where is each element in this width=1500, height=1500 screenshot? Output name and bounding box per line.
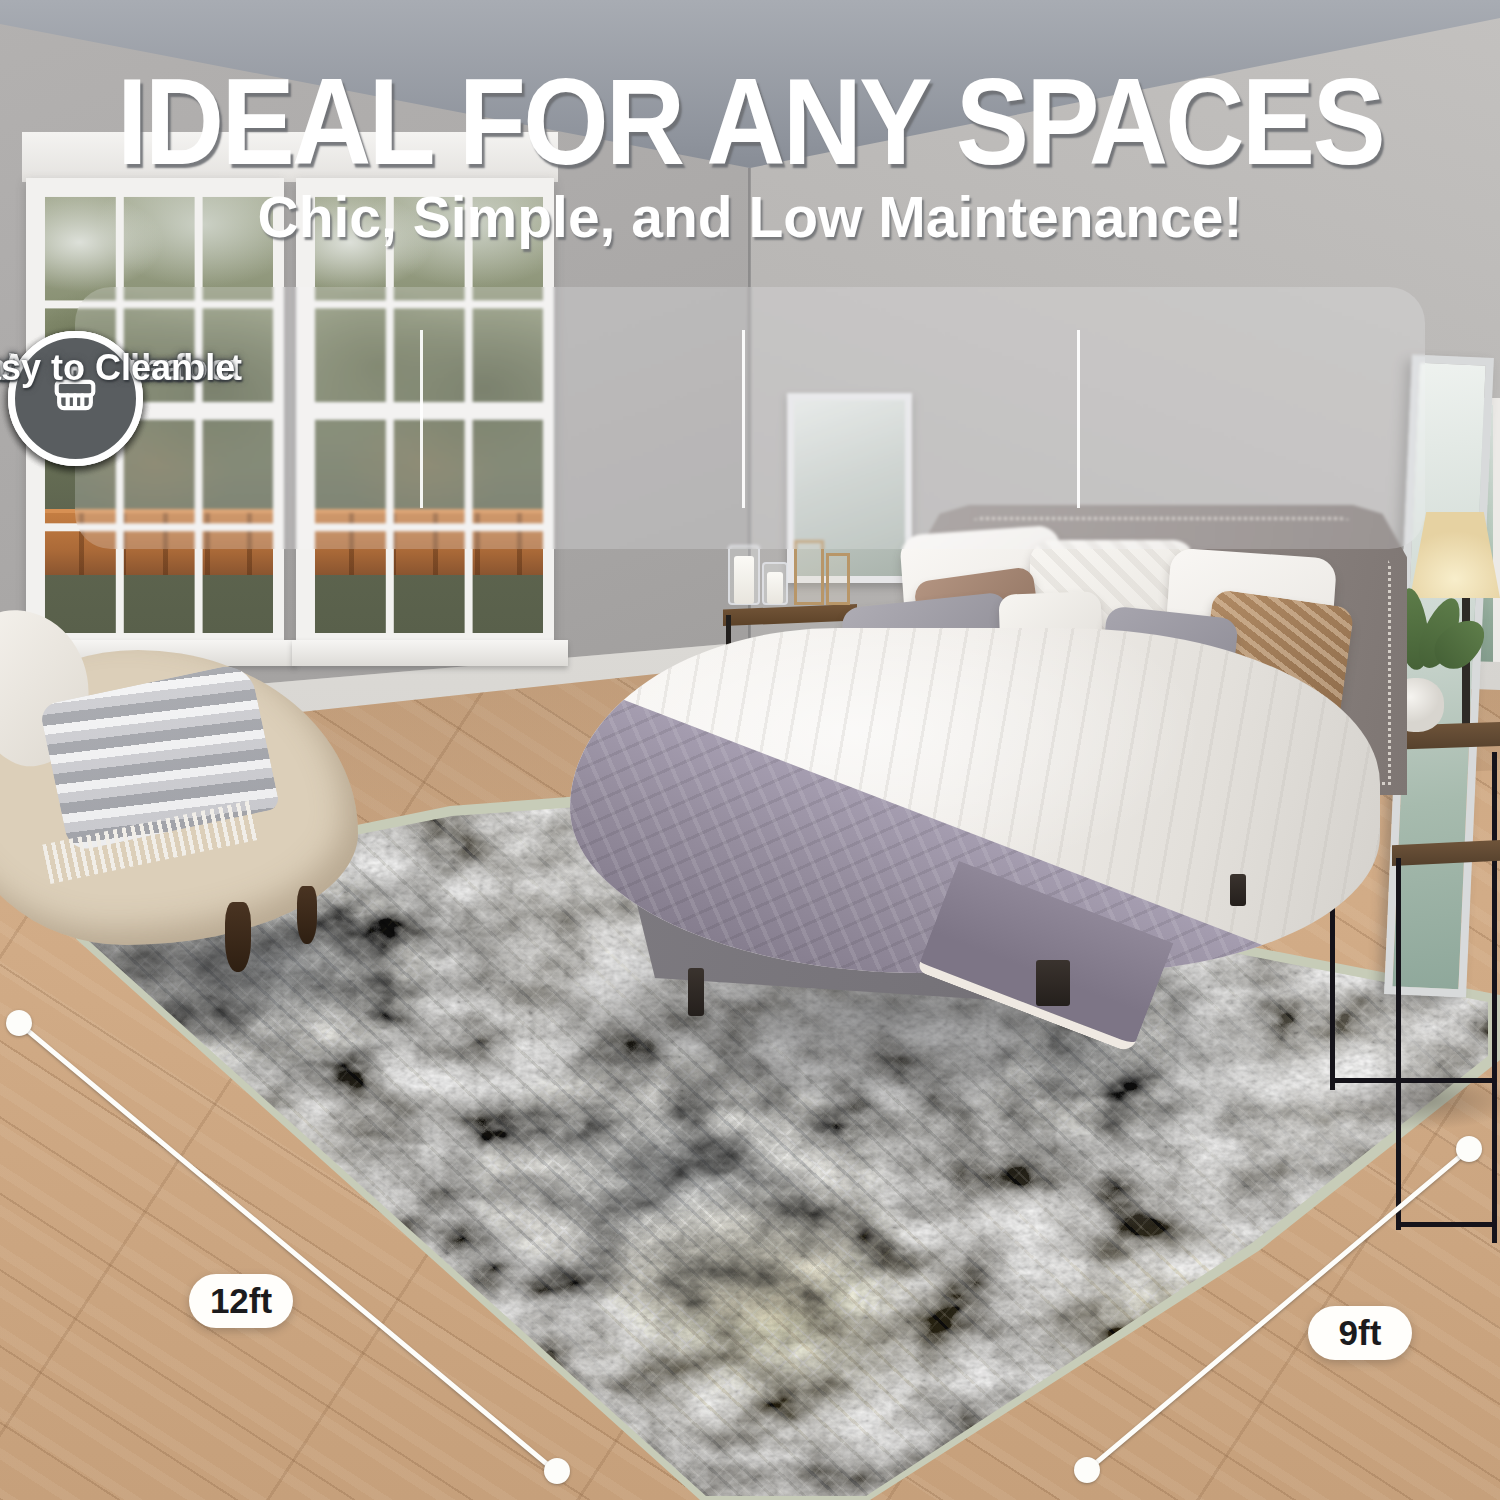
- chaise-leg: [225, 902, 251, 972]
- measure-endpoint: [544, 1458, 570, 1484]
- subheadline: Chic, Simple, and Low Maintenance!: [0, 184, 1500, 250]
- feature-label: Easy to Clean: [0, 347, 193, 389]
- candle: [734, 556, 754, 604]
- measure-endpoint: [1456, 1136, 1482, 1162]
- window-sill: [292, 640, 568, 666]
- side-table-leg: [1396, 858, 1401, 1230]
- bed-leg: [1230, 874, 1246, 906]
- headline: IDEAL FOR ANY SPACES: [75, 52, 1425, 192]
- brass-lantern: [826, 553, 850, 605]
- product-lifestyle-image: IDEAL FOR ANY SPACES Chic, Simple, and L…: [0, 0, 1500, 1500]
- side-table-leg: [1492, 868, 1497, 1243]
- measure-endpoint: [1074, 1457, 1100, 1483]
- bed-leg: [688, 968, 704, 1016]
- side-table-rail: [1396, 1222, 1496, 1227]
- measure-endpoint: [6, 1010, 32, 1036]
- candle: [767, 572, 783, 604]
- chaise-leg: [297, 886, 317, 944]
- bed-leg: [1036, 960, 1070, 1006]
- side-table-rail: [1330, 1078, 1496, 1083]
- feature-list: Softness Underfoot Machine Washable: [75, 287, 1425, 549]
- width-dimension-badge: 12ft: [189, 1274, 293, 1328]
- brass-lantern: [794, 540, 824, 605]
- depth-dimension-badge: 9ft: [1308, 1306, 1412, 1360]
